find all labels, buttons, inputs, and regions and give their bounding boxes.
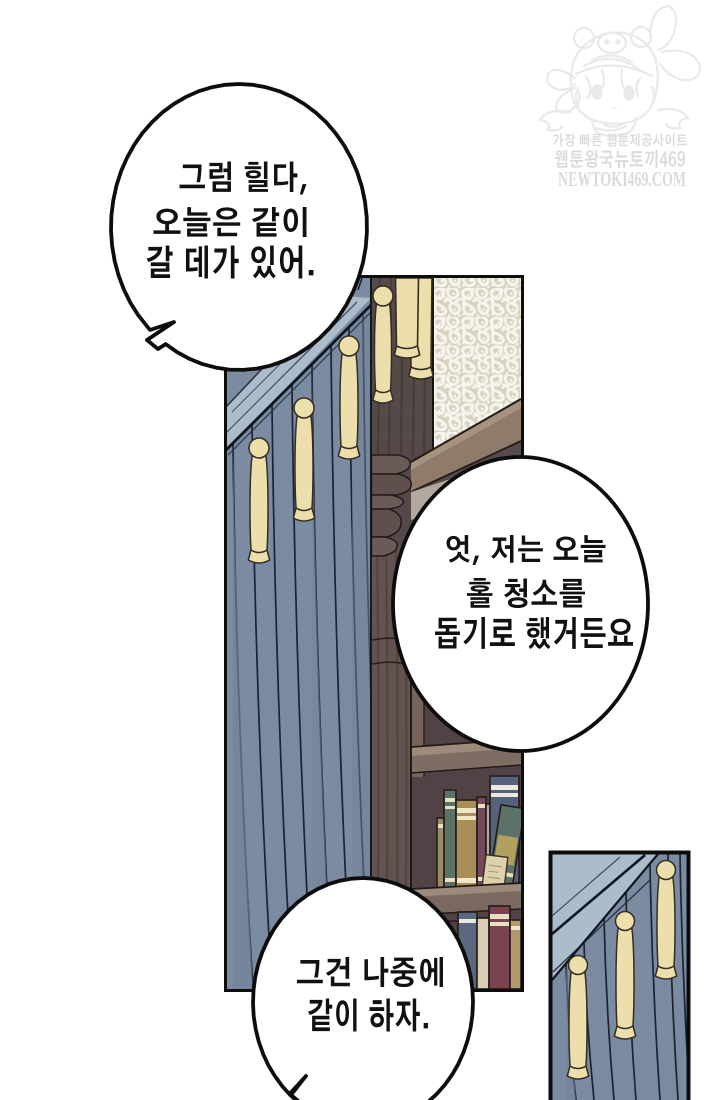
svg-text:NEWTOKI469.COM: NEWTOKI469.COM (558, 167, 686, 191)
